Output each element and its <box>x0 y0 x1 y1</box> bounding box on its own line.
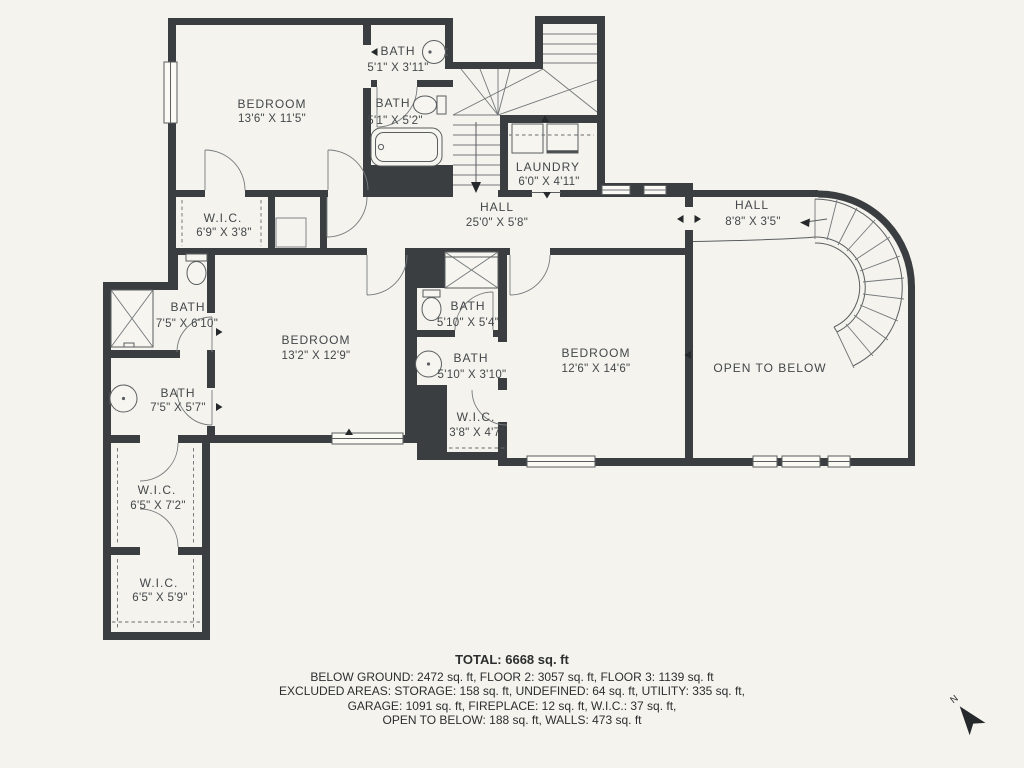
room-dims-hall-right: 8'8" X 3'5" <box>725 216 781 228</box>
room-dims-bedroom-top: 13'6" X 11'5" <box>238 113 306 125</box>
room-dims-hall-main: 25'0" X 5'8" <box>466 217 528 229</box>
summary-line-open-below: OPEN TO BELOW: 188 sq. ft, WALLS: 473 sq… <box>0 713 1024 728</box>
room-dims-wic-top: 6'9" X 3'8" <box>196 227 252 239</box>
room-dims-bath-top-2: 5'1" X 5'2" <box>367 115 423 127</box>
room-label-bath-left-2: BATH <box>160 386 195 400</box>
room-dims-bedroom-right: 12'6" X 14'6" <box>562 363 631 375</box>
room-label-hall-right: HALL <box>735 198 769 212</box>
room-dims-laundry: 6'0" X 4'11" <box>518 176 579 188</box>
room-label-bedroom-mid: BEDROOM <box>281 333 350 347</box>
room-label-bath-mid-1: BATH <box>450 299 485 313</box>
summary-line-excluded: EXCLUDED AREAS: STORAGE: 158 sq. ft, UND… <box>0 684 1024 699</box>
dryer-icon <box>547 124 578 153</box>
room-dims-bedroom-mid: 13'2" X 12'9" <box>282 350 351 362</box>
sink-icon <box>423 41 446 64</box>
room-dims-bath-left-1: 7'5" X 6'10" <box>156 318 218 330</box>
room-dims-bath-mid-1: 5'10" X 5'4" <box>437 317 499 329</box>
summary-line-garage: GARAGE: 1091 sq. ft, FIREPLACE: 12 sq. f… <box>0 699 1024 714</box>
room-label-wic-mid: W.I.C. <box>457 410 496 424</box>
toilet-icon <box>186 254 207 261</box>
room-label-bath-mid-2: BATH <box>453 351 488 365</box>
room-dims-bath-top-1: 5'1" X 3'11" <box>367 62 428 74</box>
room-dims-bath-mid-2: 5'10" X 3'10" <box>438 369 507 381</box>
room-label-wic-bottom-1: W.I.C. <box>138 483 177 497</box>
room-dims-wic-bottom-1: 6'5" X 7'2" <box>130 500 186 512</box>
room-label-bedroom-top: BEDROOM <box>237 97 306 111</box>
toilet-icon <box>423 290 440 297</box>
room-label-wic-top: W.I.C. <box>204 211 243 225</box>
room-dims-wic-mid: 3'8" X 4'7" <box>449 427 505 439</box>
summary-line-floors: BELOW GROUND: 2472 sq. ft, FLOOR 2: 3057… <box>0 670 1024 685</box>
room-label-wic-bottom-2: W.I.C. <box>140 576 179 590</box>
toilet-icon <box>437 96 446 114</box>
room-label-bedroom-right: BEDROOM <box>561 346 630 360</box>
room-dims-wic-bottom-2: 6'5" X 5'9" <box>132 592 188 604</box>
room-label-bath-top-1: BATH <box>380 44 415 58</box>
room-dims-bath-left-2: 7'5" X 5'7" <box>150 402 206 414</box>
room-label-bath-top-2: BATH <box>375 96 410 110</box>
room-label-hall-main: HALL <box>480 200 514 214</box>
washer-icon <box>512 124 543 153</box>
room-label-open-to-below: OPEN TO BELOW <box>713 361 826 375</box>
room-label-laundry: LAUNDRY <box>516 160 580 174</box>
summary-total: TOTAL: 6668 sq. ft <box>0 653 1024 668</box>
area-summary: TOTAL: 6668 sq. ft BELOW GROUND: 2472 sq… <box>0 653 1024 728</box>
room-label-bath-left-1: BATH <box>170 300 205 314</box>
